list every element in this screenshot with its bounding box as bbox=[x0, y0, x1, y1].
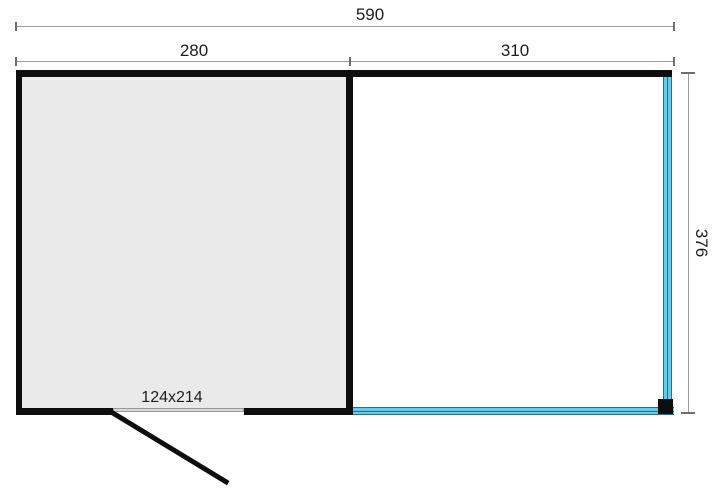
dimension-tick bbox=[673, 22, 675, 31]
dimension-label-veranda-width: 310 bbox=[445, 42, 585, 59]
dimension-label-depth-text: 376 bbox=[694, 229, 711, 257]
door-size-label: 124x214 bbox=[102, 390, 242, 406]
cabin-room bbox=[16, 70, 353, 415]
corner-post bbox=[658, 399, 673, 414]
dimension-label-room-width: 280 bbox=[124, 42, 264, 59]
veranda-glass-front bbox=[353, 407, 674, 415]
floor-plan-canvas: 590 280 310 124x214 376 bbox=[0, 0, 720, 491]
dimension-tick bbox=[15, 57, 17, 66]
dimension-tick bbox=[681, 412, 695, 414]
glass-center-line bbox=[667, 77, 668, 399]
dimension-tick bbox=[15, 22, 17, 31]
dimension-label-overall-width: 590 bbox=[300, 6, 440, 23]
dimension-tick bbox=[349, 57, 351, 66]
veranda-top-wall bbox=[353, 70, 672, 77]
glass-center-line bbox=[353, 411, 674, 412]
door-swing-line bbox=[111, 410, 230, 485]
veranda-glass-side bbox=[663, 77, 672, 399]
dimension-tick bbox=[673, 57, 675, 66]
dimension-line bbox=[16, 26, 674, 27]
dimension-label-depth: 376 bbox=[680, 221, 720, 265]
door-leaf bbox=[113, 408, 244, 412]
dimension-line bbox=[16, 61, 674, 62]
dimension-tick bbox=[681, 72, 695, 74]
